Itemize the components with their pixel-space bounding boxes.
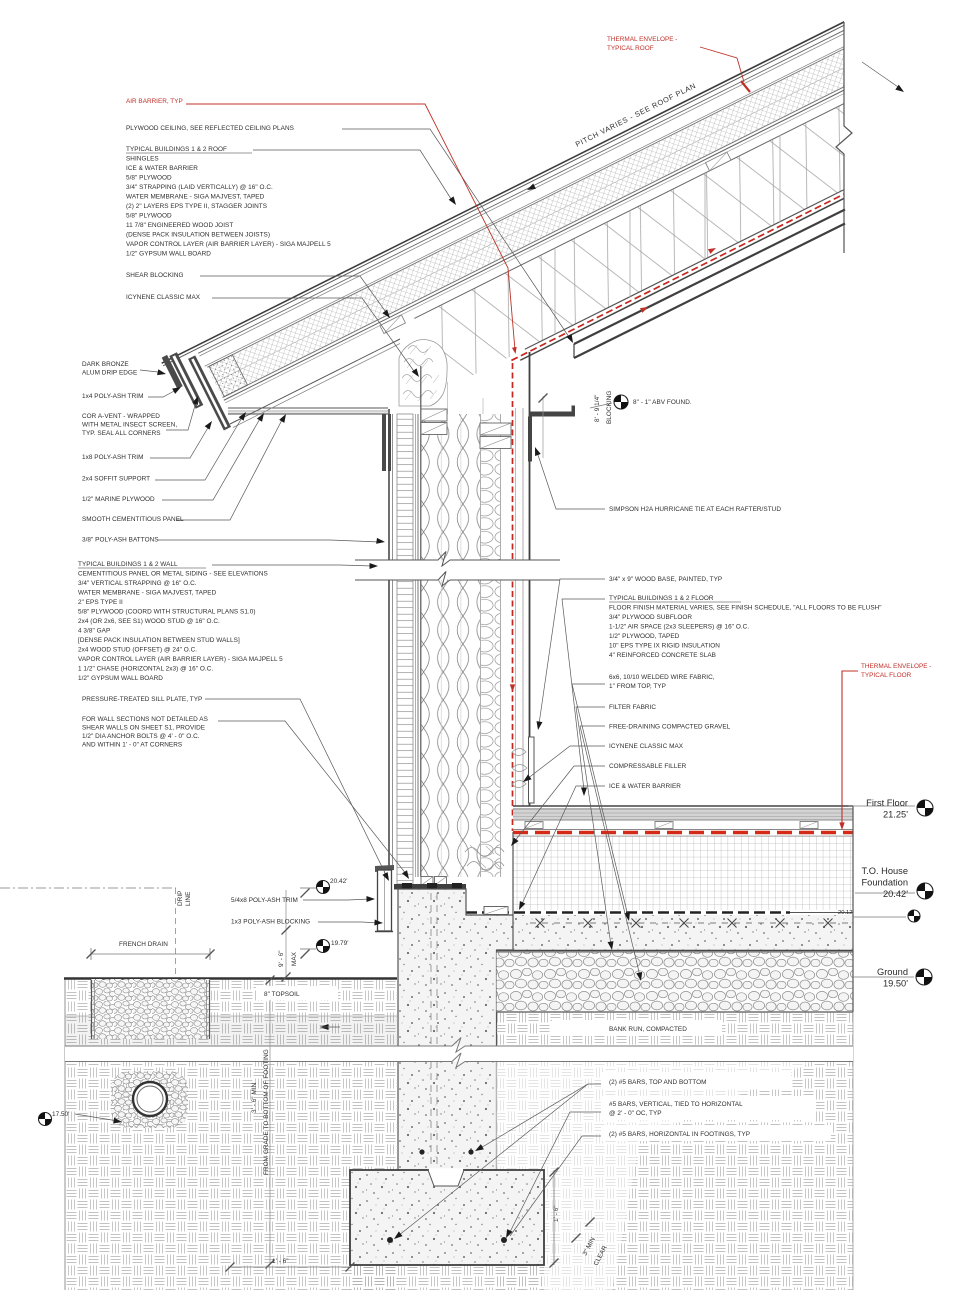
svg-text:THERMAL ENVELOPE -: THERMAL ENVELOPE - <box>607 36 677 43</box>
svg-text:8' - 9 1/4": 8' - 9 1/4" <box>594 395 601 423</box>
svg-text:5/8" PLYWOOD: 5/8" PLYWOOD <box>126 175 172 182</box>
svg-text:SIMPSON H2A HURRICANE TIE AT E: SIMPSON H2A HURRICANE TIE AT EACH RAFTER… <box>609 506 781 513</box>
svg-text:20.42': 20.42' <box>330 878 348 885</box>
svg-text:AND WITHIN 1' - 0" AT CORNERS: AND WITHIN 1' - 0" AT CORNERS <box>82 742 182 749</box>
svg-text:19.79': 19.79' <box>331 940 349 947</box>
svg-text:SHEAR WALLS ON SHEET S1, PROVI: SHEAR WALLS ON SHEET S1, PROVIDE <box>82 725 205 732</box>
svg-text:AIR BARRIER, TYP: AIR BARRIER, TYP <box>126 98 183 105</box>
svg-text:2x4 WOOD STUD (OFFSET) @ 24" O: 2x4 WOOD STUD (OFFSET) @ 24" O.C. <box>78 647 197 654</box>
svg-text:8" - 1" ABV FOUND.: 8" - 1" ABV FOUND. <box>633 399 692 406</box>
svg-text:VAPOR CONTROL LAYER (AIR BARRI: VAPOR CONTROL LAYER (AIR BARRIER LAYER) … <box>78 656 283 663</box>
svg-text:3' - 6" MIN: 3' - 6" MIN <box>251 1082 258 1113</box>
svg-text:1x8 POLY-ASH TRIM: 1x8 POLY-ASH TRIM <box>82 454 143 461</box>
svg-text:FILTER FABRIC: FILTER FABRIC <box>609 704 656 711</box>
svg-text:(2) #5 BARS, TOP AND BOTTOM: (2) #5 BARS, TOP AND BOTTOM <box>609 1079 706 1086</box>
svg-text:2x4 SOFFIT SUPPORT: 2x4 SOFFIT SUPPORT <box>82 476 150 483</box>
svg-text:1' - 6": 1' - 6" <box>272 1258 289 1265</box>
svg-text:1" FROM TOP, TYP: 1" FROM TOP, TYP <box>609 683 666 690</box>
svg-text:PLYWOOD CEILING, SEE REFLECTED: PLYWOOD CEILING, SEE REFLECTED CEILING P… <box>126 125 294 132</box>
svg-text:21.25': 21.25' <box>883 810 908 820</box>
svg-text:LINE: LINE <box>185 892 192 906</box>
svg-text:WATER MEMBRANE - SIGA MAJVEST,: WATER MEMBRANE - SIGA MAJVEST, TAPED <box>78 590 217 597</box>
svg-text:THERMAL ENVELOPE -: THERMAL ENVELOPE - <box>861 663 931 670</box>
svg-text:FREE-DRAINING COMPACTED GRAVEL: FREE-DRAINING COMPACTED GRAVEL <box>609 724 731 731</box>
svg-text:SHEAR BLOCKING: SHEAR BLOCKING <box>126 272 184 279</box>
svg-text:10" EPS TYPE IX RIGID INSULATI: 10" EPS TYPE IX RIGID INSULATION <box>609 643 720 650</box>
svg-text:8" TOPSOIL: 8" TOPSOIL <box>264 991 300 998</box>
svg-text:ICYNENE CLASSIC MAX: ICYNENE CLASSIC MAX <box>609 743 684 750</box>
svg-text:(2) #5 BARS, HORIZONTAL IN FOO: (2) #5 BARS, HORIZONTAL IN FOOTINGS, TYP <box>609 1131 750 1138</box>
svg-text:3/4" STRAPPING (LAID VERTICALL: 3/4" STRAPPING (LAID VERTICALLY) @ 16" O… <box>126 184 273 191</box>
svg-text:BLOCKING: BLOCKING <box>606 391 613 424</box>
svg-text:2x4 (OR 2x6, SEE S1) WOOD STUD: 2x4 (OR 2x6, SEE S1) WOOD STUD @ 16" O.C… <box>78 618 220 625</box>
svg-text:TYP. SEAL ALL CORNERS: TYP. SEAL ALL CORNERS <box>82 430 161 437</box>
svg-text:TYPICAL BUILDINGS 1 & 2 ROOF: TYPICAL BUILDINGS 1 & 2 ROOF <box>126 146 227 153</box>
svg-text:DARK BRONZE: DARK BRONZE <box>82 361 129 368</box>
svg-text:6x6, 10/10 WELDED WIRE FABRIC,: 6x6, 10/10 WELDED WIRE FABRIC, <box>609 674 715 681</box>
svg-text:(2) 2" LAYERS EPS TYPE II, STA: (2) 2" LAYERS EPS TYPE II, STAGGER JOINT… <box>126 203 267 210</box>
svg-text:FLOOR FINISH MATERIAL VARIES,: FLOOR FINISH MATERIAL VARIES, SEE FINISH… <box>609 605 882 612</box>
svg-text:FROM GRADE TO BOTTOM OF FOOTIN: FROM GRADE TO BOTTOM OF FOOTING <box>263 1049 270 1175</box>
svg-text:@ 2' - 0" OC, TYP: @ 2' - 0" OC, TYP <box>609 1110 662 1117</box>
svg-text:1/2" GYPSUM WALL BOARD: 1/2" GYPSUM WALL BOARD <box>126 251 211 258</box>
svg-text:TYPICAL BUILDINGS 1 & 2 FLOOR: TYPICAL BUILDINGS 1 & 2 FLOOR <box>609 595 714 602</box>
svg-text:3/4" VERTICAL STRAPPING @ 16": 3/4" VERTICAL STRAPPING @ 16" O.C. <box>78 580 197 587</box>
svg-text:#5 BARS, VERTICAL, TIED TO HOR: #5 BARS, VERTICAL, TIED TO HORIZONTAL <box>609 1101 743 1108</box>
svg-text:1/2" GYPSUM WALL BOARD: 1/2" GYPSUM WALL BOARD <box>78 675 163 682</box>
svg-text:CEMENTITIOUS PANEL OR METAL SI: CEMENTITIOUS PANEL OR METAL SIDING - SEE… <box>78 571 268 578</box>
svg-text:TYPICAL BUILDINGS 1 & 2 WALL: TYPICAL BUILDINGS 1 & 2 WALL <box>78 561 178 568</box>
svg-text:TYPICAL FLOOR: TYPICAL FLOOR <box>861 672 912 679</box>
svg-text:19.50': 19.50' <box>883 979 908 989</box>
svg-text:BANK RUN, COMPACTED: BANK RUN, COMPACTED <box>609 1026 687 1033</box>
svg-text:3/4" PLYWOOD SUBFLOOR: 3/4" PLYWOOD SUBFLOOR <box>609 614 692 621</box>
svg-text:ICE & WATER BARRIER: ICE & WATER BARRIER <box>609 783 681 790</box>
svg-text:3/4" x 9" WOOD BASE, PAINTED,: 3/4" x 9" WOOD BASE, PAINTED, TYP <box>609 576 722 583</box>
svg-text:FOR WALL SECTIONS NOT DETAILED: FOR WALL SECTIONS NOT DETAILED AS <box>82 716 208 723</box>
svg-text:1 1/2" CHASE (HORIZONTAL 2x3): 1 1/2" CHASE (HORIZONTAL 2x3) @ 16" O.C. <box>78 666 213 673</box>
svg-text:SMOOTH CEMENTITIOUS PANEL: SMOOTH CEMENTITIOUS PANEL <box>82 516 184 523</box>
svg-text:[DENSE PACK INSULATION BETWEEN: [DENSE PACK INSULATION BETWEEN STUD WALL… <box>78 637 240 644</box>
svg-text:SHINGLES: SHINGLES <box>126 156 159 163</box>
svg-text:17.50': 17.50' <box>52 1111 70 1118</box>
svg-text:1/2" MARINE PLYWOOD: 1/2" MARINE PLYWOOD <box>82 496 155 503</box>
svg-text:1/2" PLYWOOD, TAPED: 1/2" PLYWOOD, TAPED <box>609 633 680 640</box>
svg-text:ALUM DRIP EDGE: ALUM DRIP EDGE <box>82 370 137 377</box>
svg-text:MAX: MAX <box>291 951 298 966</box>
svg-text:Ground: Ground <box>877 967 908 977</box>
svg-text:First Floor: First Floor <box>866 798 908 808</box>
svg-text:VAPOR CONTROL LAYER (AIR BARRI: VAPOR CONTROL LAYER (AIR BARRIER LAYER) … <box>126 241 331 248</box>
svg-text:WITH METAL INSECT SCREEN,: WITH METAL INSECT SCREEN, <box>82 422 177 429</box>
svg-text:1/2" DIA ANCHOR BOLTS @ 4' - 0: 1/2" DIA ANCHOR BOLTS @ 4' - 0" O.C. <box>82 733 200 740</box>
svg-text:DRIP: DRIP <box>177 891 184 906</box>
svg-text:COMPRESSABLE FILLER: COMPRESSABLE FILLER <box>609 763 687 770</box>
svg-text:1x4 POLY-ASH TRIM: 1x4 POLY-ASH TRIM <box>82 393 143 400</box>
svg-text:ICYNENE CLASSIC MAX: ICYNENE CLASSIC MAX <box>126 294 201 301</box>
svg-text:1x3 POLY-ASH BLOCKING: 1x3 POLY-ASH BLOCKING <box>231 919 310 926</box>
svg-text:4 3/8" GAP: 4 3/8" GAP <box>78 628 110 635</box>
svg-text:Foundation: Foundation <box>861 878 908 888</box>
svg-text:2" EPS TYPE II: 2" EPS TYPE II <box>78 599 123 606</box>
svg-text:4" REINFORCED CONCRETE SLAB: 4" REINFORCED CONCRETE SLAB <box>609 652 716 659</box>
svg-text:20.42': 20.42' <box>883 889 908 899</box>
svg-text:11 7/8" ENGINEERED WOOD JOIST: 11 7/8" ENGINEERED WOOD JOIST <box>126 222 233 229</box>
svg-text:5/8" PLYWOOD: 5/8" PLYWOOD <box>126 213 172 220</box>
svg-text:WATER MEMBRANE - SIGA MAJVEST,: WATER MEMBRANE - SIGA MAJVEST, TAPED <box>126 194 265 201</box>
svg-text:1-1/2" AIR SPACE (2x3 SLEEPERS: 1-1/2" AIR SPACE (2x3 SLEEPERS) @ 16" O.… <box>609 624 749 631</box>
svg-text:9' - 6": 9' - 6" <box>278 950 285 967</box>
svg-text:(DENSE PACK INSULATION BETWEEN: (DENSE PACK INSULATION BETWEEN JOISTS) <box>126 232 270 239</box>
svg-text:PRESSURE-TREATED SILL PLATE, T: PRESSURE-TREATED SILL PLATE, TYP <box>82 696 202 703</box>
svg-text:FRENCH DRAIN: FRENCH DRAIN <box>119 941 168 948</box>
svg-text:TYPICAL ROOF: TYPICAL ROOF <box>607 45 654 52</box>
svg-text:1' - 6": 1' - 6" <box>553 1205 560 1222</box>
svg-text:ICE & WATER BARRIER: ICE & WATER BARRIER <box>126 165 198 172</box>
svg-text:COR A-VENT - WRAPPED: COR A-VENT - WRAPPED <box>82 413 160 420</box>
svg-text:20.12': 20.12' <box>838 910 854 916</box>
svg-text:3/8" POLY-ASH BATTONS: 3/8" POLY-ASH BATTONS <box>82 537 159 544</box>
svg-text:5/4x8 POLY-ASH TRIM: 5/4x8 POLY-ASH TRIM <box>231 897 298 904</box>
svg-text:5/8" PLYWOOD (COORD WITH STRUC: 5/8" PLYWOOD (COORD WITH STRUCTURAL PLAN… <box>78 609 256 616</box>
svg-text:T.O. House: T.O. House <box>861 866 908 876</box>
